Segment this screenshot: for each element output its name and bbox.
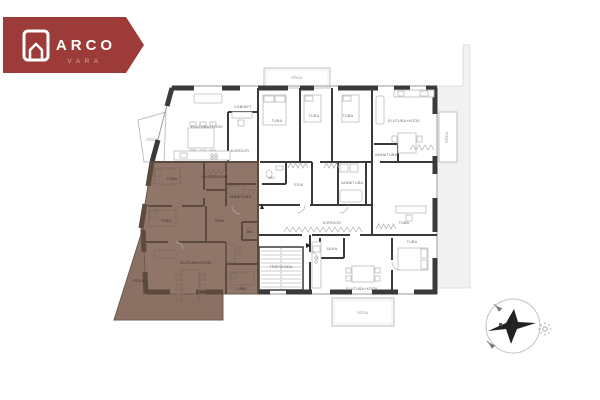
room-label: ELUTUBA+KÖÖK (388, 119, 420, 123)
sun-icon (539, 323, 552, 336)
compass-needle (488, 309, 536, 344)
room-label: TUBA (236, 287, 247, 291)
room-label: TUBA (161, 219, 172, 223)
room-label: SAUN (327, 247, 338, 251)
room-label: GARDEROOB (202, 175, 228, 179)
brand-name: ARCO (56, 37, 116, 54)
room-label: TUBA (272, 119, 283, 123)
room-label: TUBA (343, 114, 354, 118)
terrace-strip (437, 45, 470, 288)
room-label: KORIDOR (323, 221, 342, 225)
logo-banner[interactable]: ARCO VARA (3, 17, 144, 73)
room-label: TUBA (309, 114, 320, 118)
room-label: KORIDOR (231, 149, 250, 153)
room-label: ELUTUBA+KÖÖK (180, 261, 212, 265)
balcony-top: RÕDU (264, 68, 330, 88)
room-label: WC (247, 230, 254, 234)
compass-rose-icon (486, 299, 552, 353)
room-label: VANNITUBA (229, 195, 252, 199)
room-label: WC (269, 176, 276, 180)
floorplan-page: RÕDU RÕDU RÕDU RÕDU (0, 0, 600, 400)
room-label: RÕDU (133, 278, 145, 283)
compass-center-mark (499, 323, 502, 326)
room-label: ESIK (294, 183, 304, 187)
balcony-label: RÕDU (444, 131, 449, 142)
room-label: ESIK (215, 219, 225, 223)
room-label: VANNITUBA (341, 181, 364, 185)
room-label: TUBA (399, 221, 410, 225)
balcony-label: RÕDU (291, 75, 302, 80)
apartment-area[interactable] (141, 162, 258, 294)
highlighted-apartment[interactable] (114, 162, 258, 320)
brand-subname: VARA (67, 58, 102, 65)
room-label: KABINET (234, 105, 252, 109)
balcony-label: RÕDU (357, 310, 368, 315)
balcony-bottom: RÕDU (332, 298, 394, 326)
room-label: ELUTUBA+KÖÖK (191, 125, 223, 129)
room-label: TUBA (407, 240, 418, 244)
room-label: VANNITUBA (375, 153, 398, 157)
balcony-right: RÕDU (439, 112, 457, 162)
room-label: TREPIKODA (269, 265, 292, 269)
room-label: ELUTUBA+KÖÖK (346, 287, 378, 291)
room-label: TUBA (167, 177, 178, 181)
